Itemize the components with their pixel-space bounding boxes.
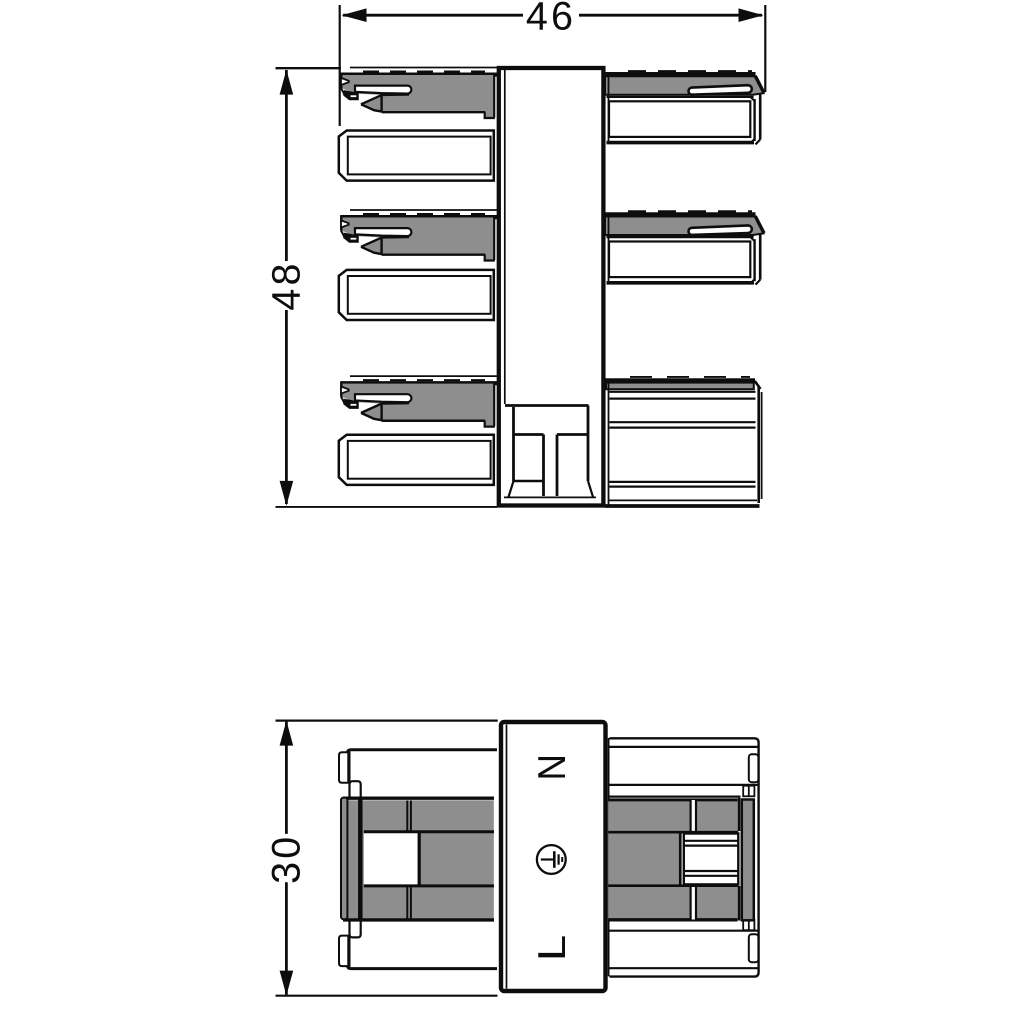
svg-text:46: 46 <box>526 0 576 39</box>
svg-text:48: 48 <box>265 260 309 310</box>
svg-text:L: L <box>531 935 574 962</box>
svg-text:N: N <box>531 754 574 781</box>
svg-text:30: 30 <box>265 834 309 884</box>
